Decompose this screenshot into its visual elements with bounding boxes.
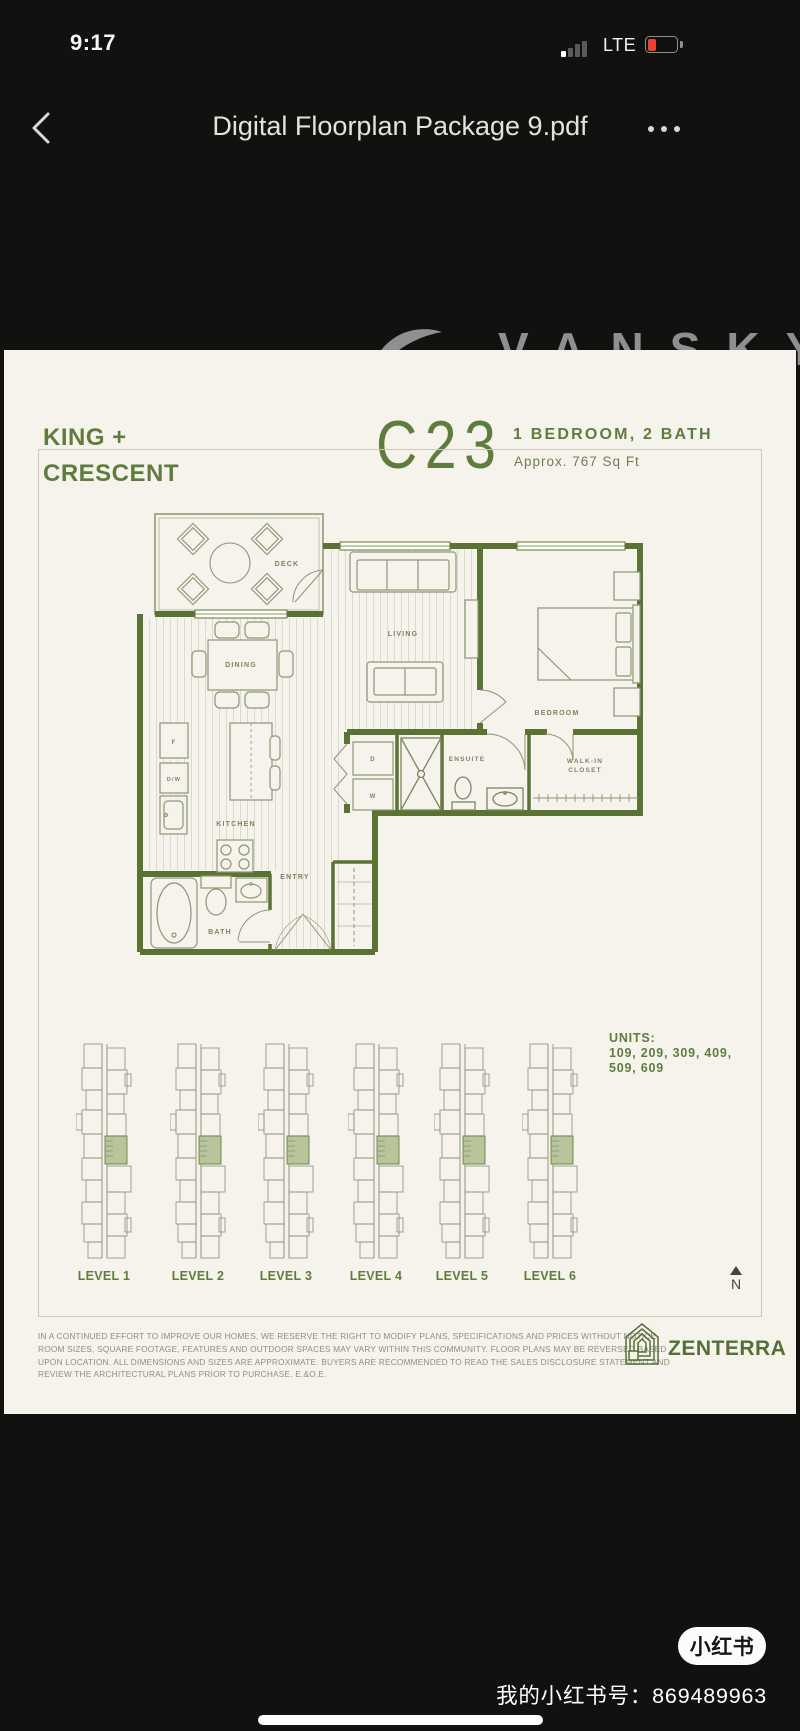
bedroom-furniture	[538, 572, 640, 716]
more-options-button[interactable]	[648, 122, 692, 136]
room-label-bedroom: BEDROOM	[535, 710, 580, 717]
builder-logo: ZENTERRA	[625, 1322, 786, 1366]
level-label: LEVEL 2	[170, 1269, 226, 1283]
units-label: UNITS:	[609, 1031, 732, 1046]
network-type-label: LTE	[603, 35, 636, 56]
floorplan-drawing: DECK LIVING DINING BEDROOM KITCHEN ENSUI…	[135, 510, 645, 960]
building-plan-icon	[170, 1040, 226, 1262]
signal-strength-icon	[561, 38, 593, 57]
fixture-label-fridge: F	[172, 740, 177, 746]
level-diagram-2: LEVEL 2	[170, 1040, 226, 1283]
home-indicator[interactable]	[258, 1715, 543, 1725]
level-label: LEVEL 1	[76, 1269, 132, 1283]
building-plan-icon	[434, 1040, 490, 1262]
units-list: UNITS: 109, 209, 309, 409, 509, 609	[609, 1031, 732, 1076]
level-diagram-5: LEVEL 5	[434, 1040, 490, 1283]
screen: 9:17 LTE Digital Floorplan Package 9.pdf…	[0, 0, 800, 1731]
level-diagram-3: LEVEL 3	[258, 1040, 314, 1283]
building-plan-icon	[76, 1040, 132, 1262]
ensuite-fixtures	[401, 738, 523, 810]
room-label-entry: ENTRY	[280, 874, 309, 881]
disclaimer-line: IN A CONTINUED EFFORT TO IMPROVE OUR HOM…	[38, 1330, 670, 1343]
units-line1: 109, 209, 309, 409,	[609, 1046, 732, 1061]
plan-spec: 1 BEDROOM, 2 BATH	[513, 426, 713, 444]
xiaohongshu-account-text: 我的小红书号：869489963	[496, 1679, 767, 1710]
bath-fixtures	[151, 876, 267, 948]
walkin-rod	[533, 794, 639, 802]
level-label: LEVEL 6	[522, 1269, 578, 1283]
fixture-label-dryer: D	[370, 757, 376, 763]
room-label-walkin-1: WALK-IN	[567, 758, 603, 765]
level-label: LEVEL 4	[348, 1269, 404, 1283]
fixture-label-washer: W	[370, 794, 377, 800]
disclaimer-line: ROOM SIZES, SQUARE FOOTAGE, FEATURES AND…	[38, 1343, 670, 1356]
north-indicator: N	[724, 1266, 748, 1292]
xiaohongshu-badge: 小红书	[678, 1627, 766, 1665]
room-label-dining: DINING	[225, 662, 257, 669]
building-plan-icon	[522, 1040, 578, 1262]
battery-icon	[645, 36, 685, 53]
disclaimer-line: UPON LOCATION. ALL DIMENSIONS AND SIZES …	[38, 1356, 670, 1369]
room-label-deck: DECK	[275, 561, 300, 568]
deck-furniture	[177, 523, 282, 604]
disclaimer: IN A CONTINUED EFFORT TO IMPROVE OUR HOM…	[38, 1330, 670, 1381]
north-arrow-icon	[730, 1266, 742, 1275]
room-label-bath: BATH	[208, 929, 232, 936]
level-diagram-1: LEVEL 1	[76, 1040, 132, 1283]
pdf-page: KING + CRESCENT C23 1 BEDROOM, 2 BATH Ap…	[4, 350, 796, 1414]
room-label-living: LIVING	[388, 631, 419, 638]
building-plan-icon	[258, 1040, 314, 1262]
north-label: N	[724, 1276, 748, 1292]
level-diagram-6: LEVEL 6	[522, 1040, 578, 1283]
level-label: LEVEL 3	[258, 1269, 314, 1283]
zenterra-house-icon	[625, 1322, 659, 1366]
room-label-walkin-2: CLOSET	[568, 767, 602, 774]
fixture-label-dishwasher: D/W	[167, 777, 181, 783]
building-plan-icon	[348, 1040, 404, 1262]
level-diagram-4: LEVEL 4	[348, 1040, 404, 1283]
builder-name: ZENTERRA	[668, 1337, 786, 1361]
room-label-kitchen: KITCHEN	[216, 821, 256, 828]
level-label: LEVEL 5	[434, 1269, 490, 1283]
room-label-ensuite: ENSUITE	[449, 756, 486, 763]
units-line2: 509, 609	[609, 1061, 732, 1076]
disclaimer-line: REVIEW THE ARCHITECTURAL PLANS PRIOR TO …	[38, 1368, 670, 1381]
status-time: 9:17	[70, 30, 116, 56]
